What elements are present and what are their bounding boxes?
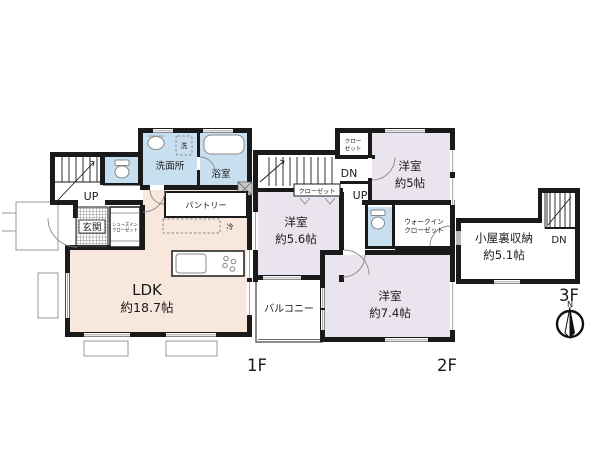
bath-label: 浴室	[211, 168, 231, 180]
stairs-dn-label-3f: DN	[551, 235, 566, 246]
window-sill-left	[38, 273, 58, 318]
closet-label: クローゼット	[298, 188, 335, 196]
bedroom-5jo-size: 約5帖	[395, 176, 426, 190]
stairs-3f	[545, 192, 575, 229]
floor-plan-page: 洗面所 浴室 洗 パントリー 玄関 シューズイン クローゼット 冷 UP LDK…	[0, 0, 600, 450]
window-sill-bottom-1	[84, 341, 128, 356]
stairs-up-label-2f: UP	[353, 189, 368, 202]
floor-plan-svg: 洗面所 浴室 洗 パントリー 玄関 シューズイン クローゼット 冷 UP LDK…	[0, 0, 600, 450]
shoe-closet-label-2: クローゼット	[112, 227, 138, 234]
floor1-label: 1F	[247, 356, 267, 375]
balcony-label: バルコニー	[264, 303, 314, 315]
wic-label-1: ウォークイン	[404, 218, 444, 226]
window-sill-bottom-2	[166, 341, 217, 356]
bedroom-74-size: 約7.4帖	[369, 306, 411, 320]
toilet-icon-2f	[371, 210, 385, 229]
bedroom-56-size: 約5.6帖	[275, 232, 317, 246]
bedroom-56-label: 洋室	[284, 215, 307, 229]
bathtub-icon	[204, 135, 244, 154]
washroom-label: 洗面所	[156, 160, 185, 172]
stairs-dn-label-2f: DN	[341, 167, 358, 180]
washer-label: 洗	[181, 141, 188, 150]
kitchen-sink-icon	[176, 254, 206, 273]
ldk-size-label: 約18.7帖	[120, 300, 174, 315]
genkan-label: 玄関	[82, 222, 101, 234]
floor-1f: 洗面所 浴室 洗 パントリー 玄関 シューズイン クローゼット 冷 UP LDK…	[2, 128, 267, 375]
closet-small-label-1: クロー	[345, 138, 362, 145]
ldk-label: LDK	[132, 281, 163, 299]
sink-icon	[148, 136, 164, 150]
attic-label: 小屋裏収納	[475, 231, 533, 245]
floor-2f: クロー ゼット DN UP クローゼット 洋室 約5.6帖 洋室 約5帖 洋室 …	[253, 128, 457, 375]
floor2-label: 2F	[437, 356, 457, 375]
bedroom-5jo-label: 洋室	[398, 159, 421, 173]
closet-small-label-2: ゼット	[345, 145, 362, 153]
stairs-2f	[260, 157, 332, 186]
floor-3f: 小屋裏収納 約5.1帖 DN 3F	[456, 188, 580, 305]
fridge-label: 冷	[227, 222, 234, 231]
shoe-closet-label-1: シューズイン	[112, 221, 138, 228]
wic-label-2: クローゼット	[404, 226, 444, 235]
toilet-icon-1f	[115, 160, 129, 178]
attic-size: 約5.1帖	[483, 248, 525, 262]
porch-box	[16, 202, 58, 250]
stairs-up-label-1f: UP	[84, 190, 99, 203]
pantry-label: パントリー	[185, 200, 226, 210]
bedroom-74-label: 洋室	[378, 289, 401, 303]
